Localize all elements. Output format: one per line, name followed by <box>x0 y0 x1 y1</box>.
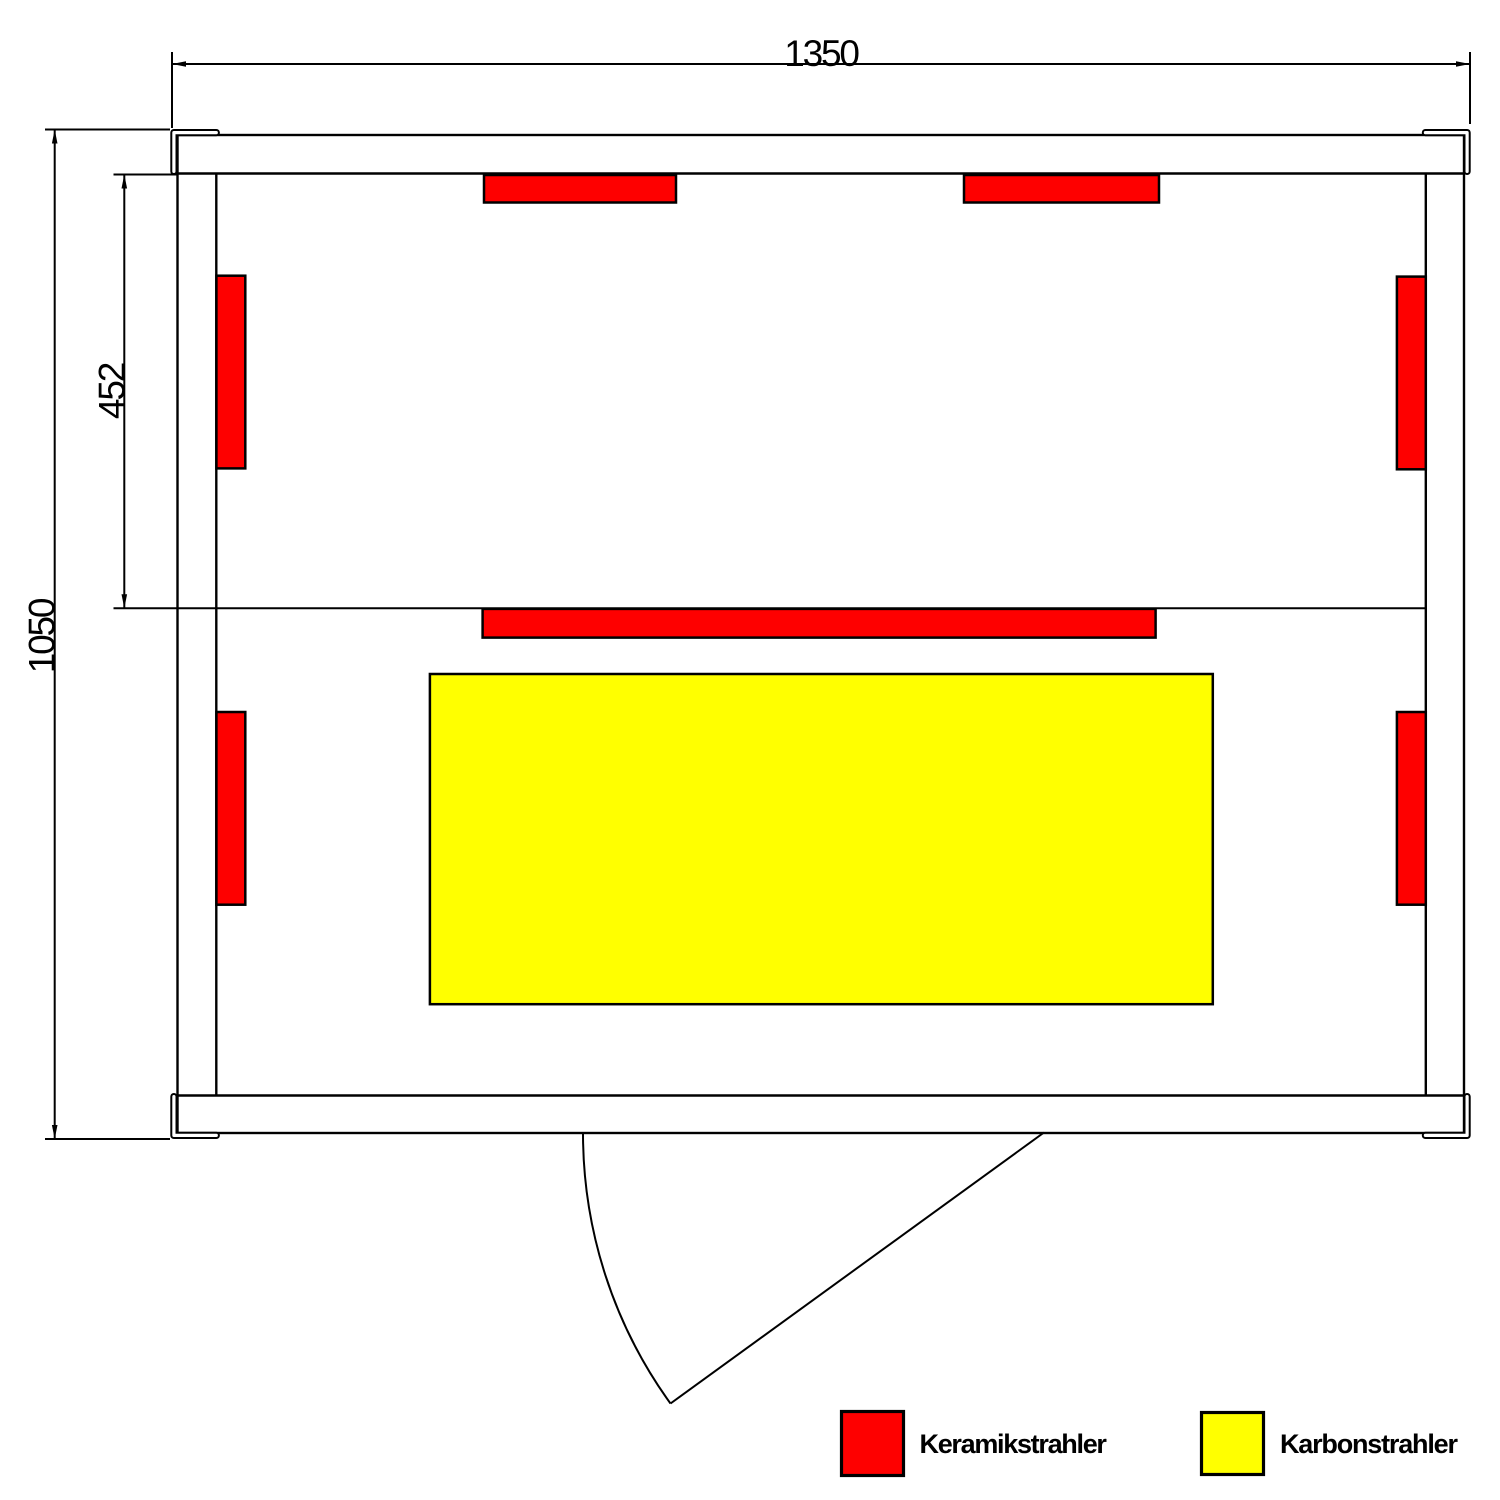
svg-text:452: 452 <box>91 363 132 419</box>
svg-text:Karbonstrahler: Karbonstrahler <box>1280 1429 1458 1459</box>
svg-text:Keramikstrahler: Keramikstrahler <box>920 1429 1108 1459</box>
svg-text:1050: 1050 <box>22 598 63 673</box>
svg-text:1350: 1350 <box>784 33 859 74</box>
